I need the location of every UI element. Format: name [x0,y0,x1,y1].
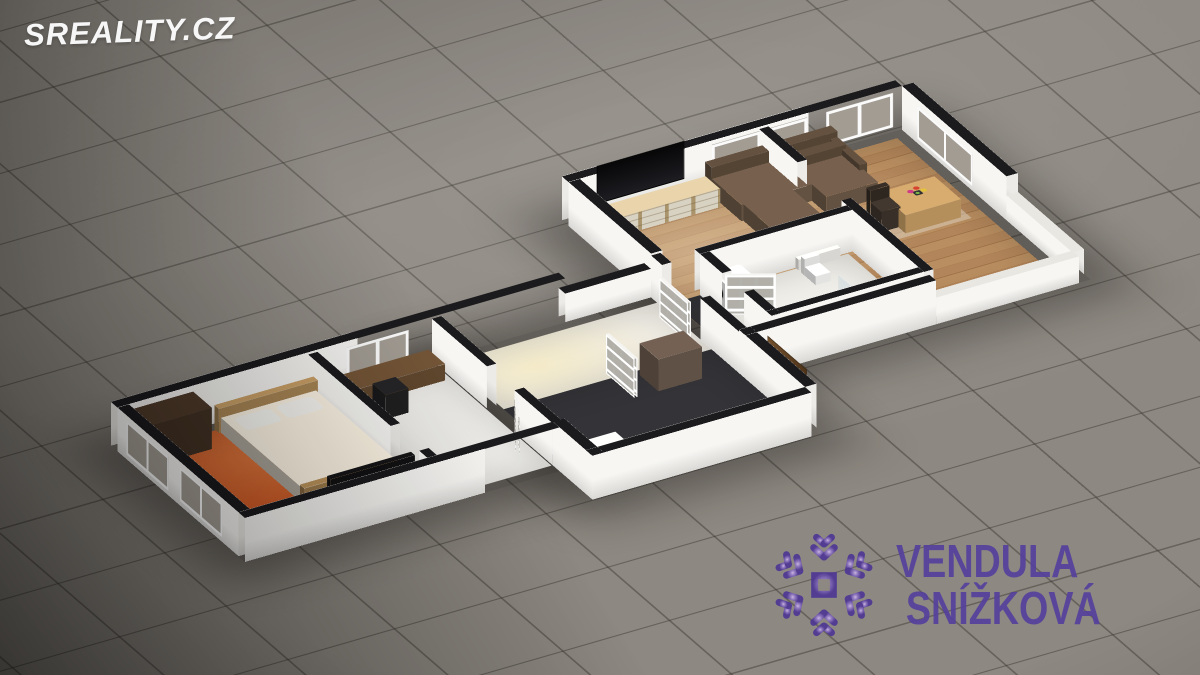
snowflake-icon [768,529,880,641]
agent-watermark: VENDULA SNÍŽKOVÁ [768,529,1146,641]
agent-name-line2: SNÍŽKOVÁ [896,585,1101,632]
floor-plan-render: SREALITY.CZ VENDULA SNÍŽKOV [0,0,1200,675]
agent-name: VENDULA SNÍŽKOVÁ [896,538,1101,632]
agent-name-line1: VENDULA [896,538,1101,585]
sreality-watermark: SREALITY.CZ [23,10,236,53]
